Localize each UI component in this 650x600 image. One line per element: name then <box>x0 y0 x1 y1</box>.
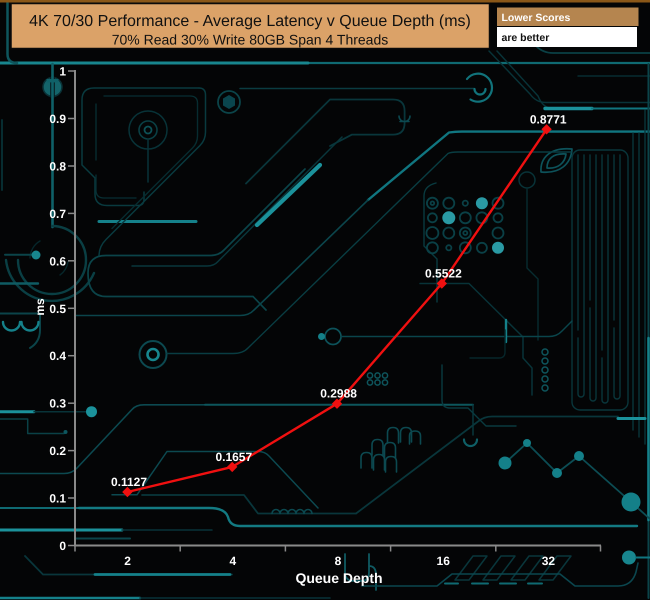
svg-text:0.1127: 0.1127 <box>111 475 147 489</box>
svg-text:0.8: 0.8 <box>49 160 66 174</box>
svg-text:4K 70/30 Performance - Average: 4K 70/30 Performance - Average Latency v… <box>29 13 471 30</box>
svg-text:0.1657: 0.1657 <box>215 450 252 464</box>
svg-text:16: 16 <box>437 554 451 568</box>
svg-text:8: 8 <box>335 554 342 568</box>
svg-text:Queue Depth: Queue Depth <box>295 570 382 586</box>
svg-text:32: 32 <box>542 554 556 568</box>
svg-text:0.4: 0.4 <box>49 349 66 363</box>
svg-text:0: 0 <box>59 539 66 553</box>
svg-text:0.6: 0.6 <box>49 254 66 268</box>
svg-text:4: 4 <box>229 554 236 568</box>
svg-text:0.3: 0.3 <box>49 397 66 411</box>
svg-text:1: 1 <box>59 65 66 79</box>
svg-text:ms: ms <box>33 298 47 316</box>
svg-text:0.7: 0.7 <box>49 207 66 221</box>
svg-text:are better: are better <box>502 32 550 44</box>
svg-text:Lower Scores: Lower Scores <box>502 12 571 24</box>
svg-text:0.5522: 0.5522 <box>425 267 462 281</box>
svg-text:0.2: 0.2 <box>49 444 66 458</box>
svg-text:0.8771: 0.8771 <box>530 112 567 126</box>
svg-text:2: 2 <box>124 554 131 568</box>
svg-text:0.5: 0.5 <box>49 302 66 316</box>
svg-text:0.9: 0.9 <box>49 112 66 126</box>
svg-text:70% Read 30% Write 80GB Span 4: 70% Read 30% Write 80GB Span 4 Threads <box>112 32 389 48</box>
svg-text:0.2988: 0.2988 <box>320 387 357 401</box>
svg-text:0.1: 0.1 <box>49 492 66 506</box>
